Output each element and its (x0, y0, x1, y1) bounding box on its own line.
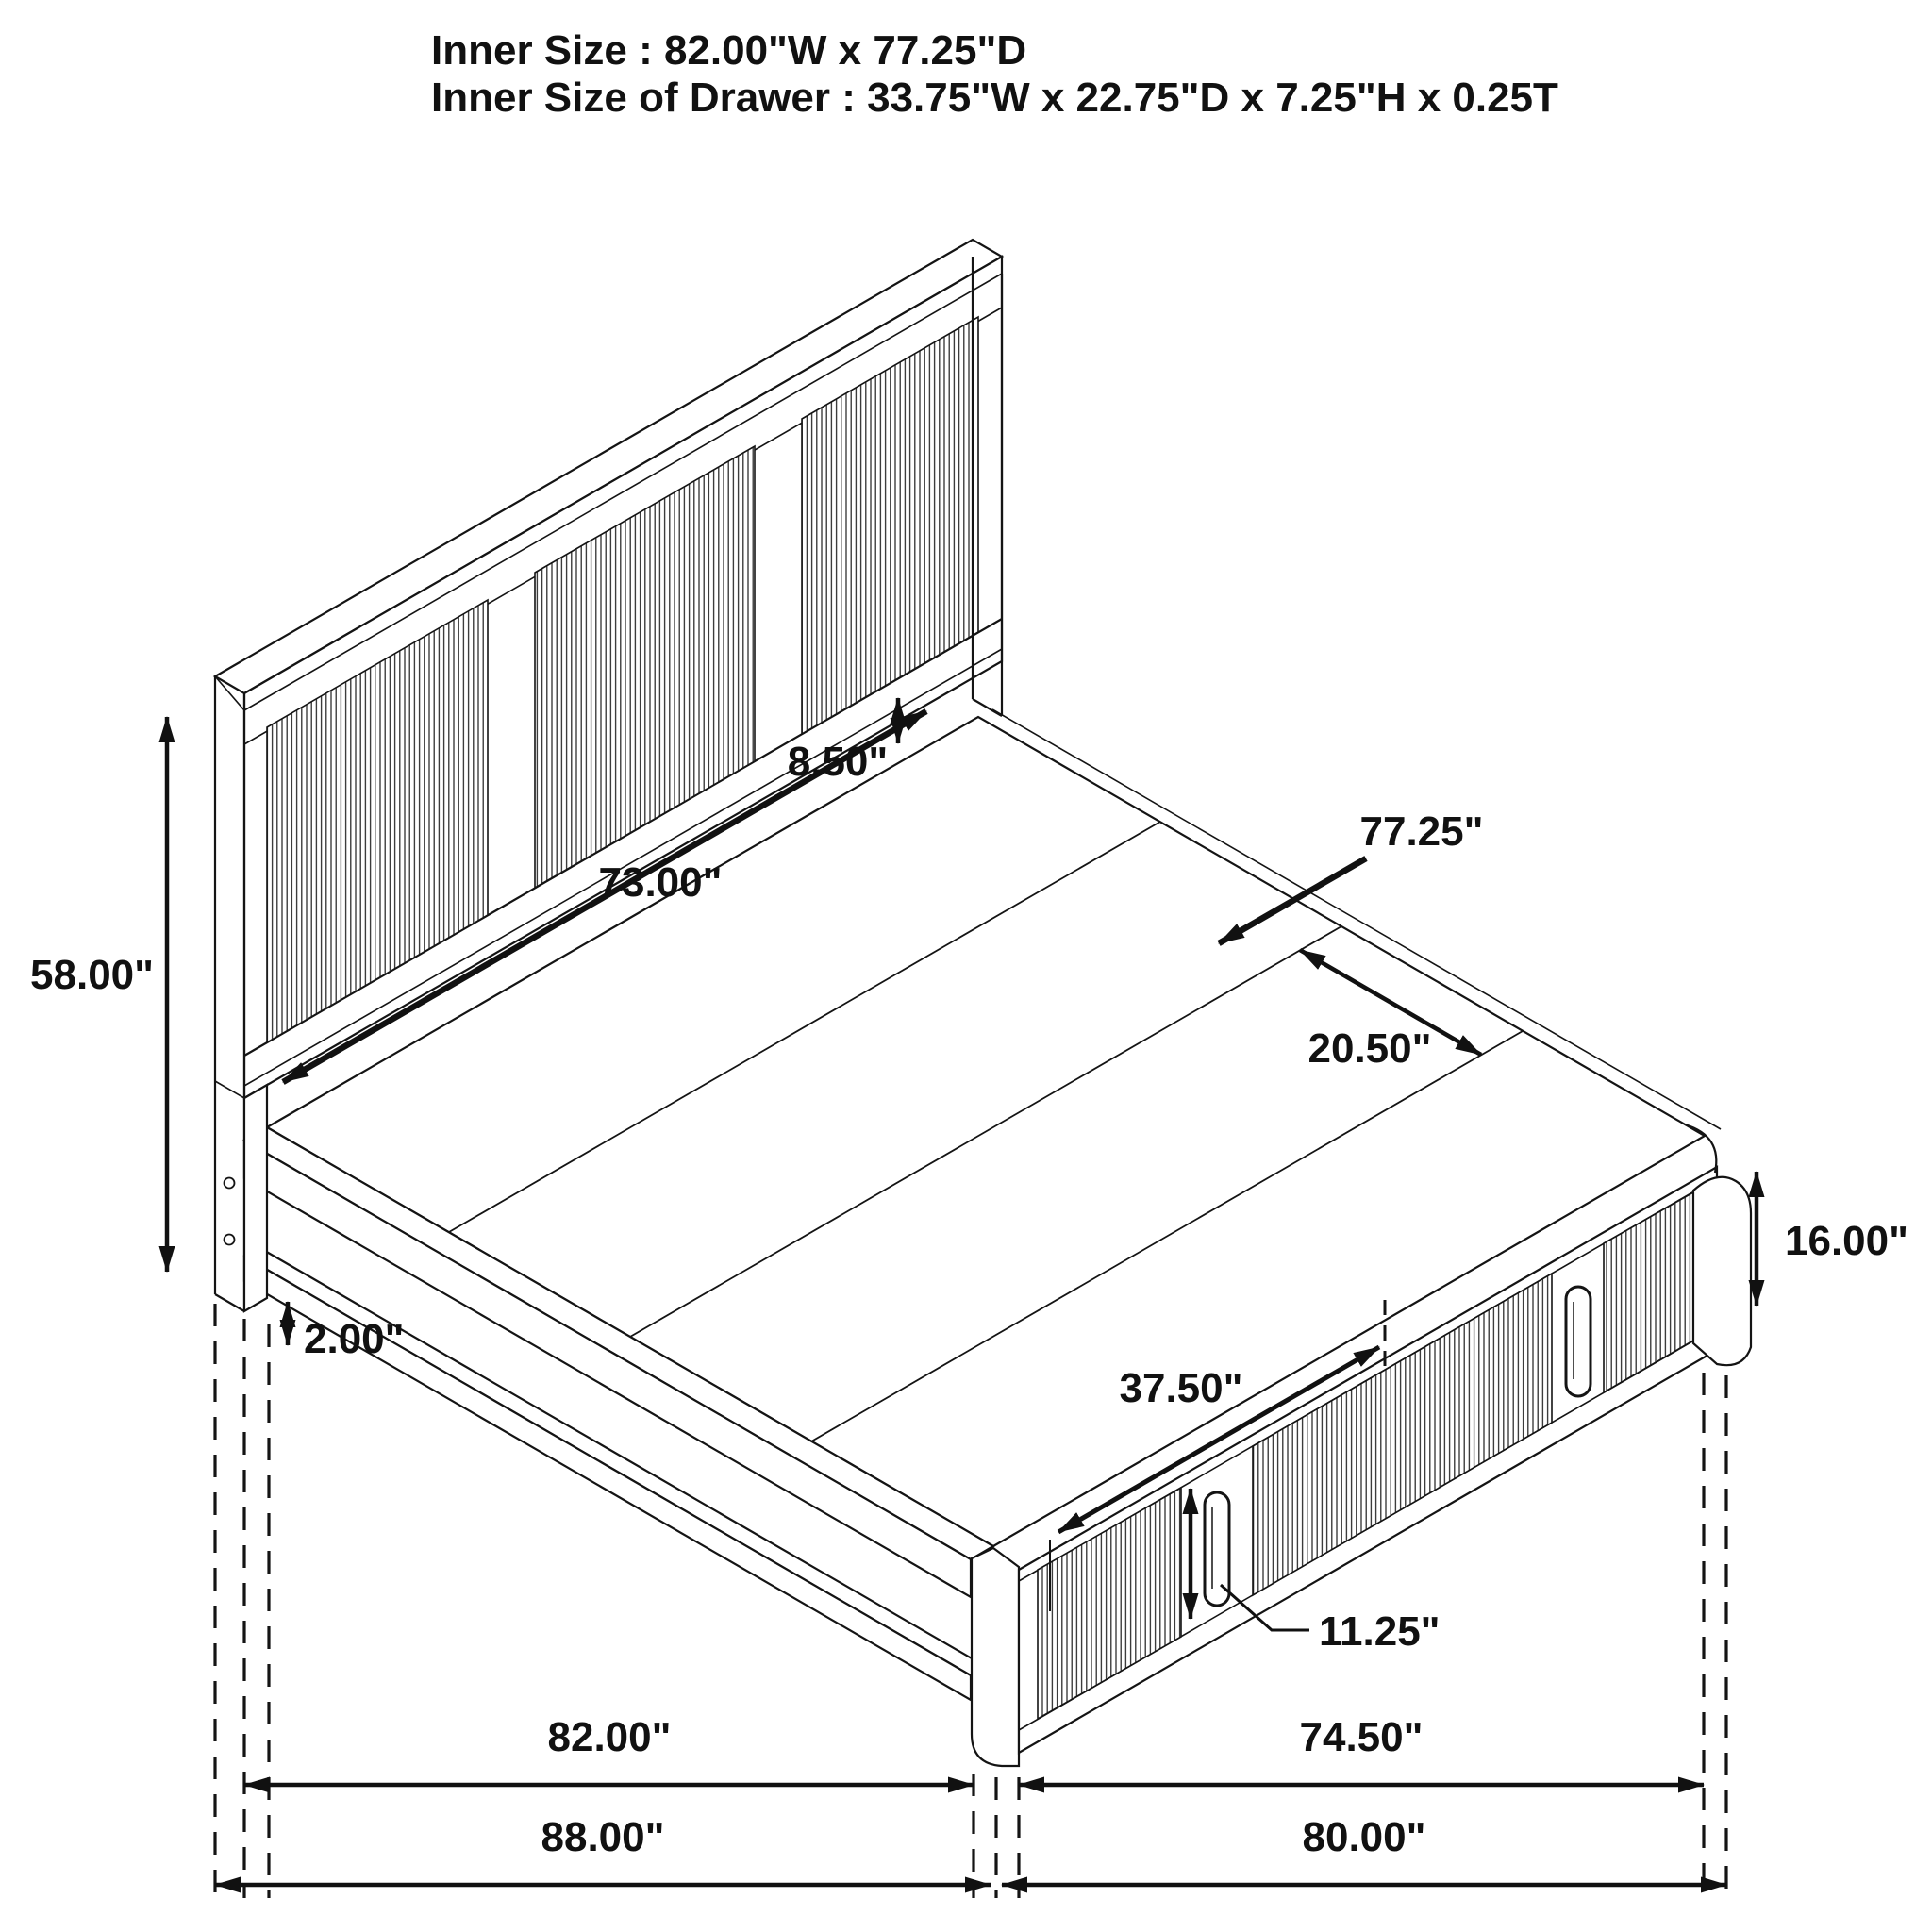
title-block: Inner Size : 82.00"W x 77.25"D Inner Siz… (431, 27, 1558, 121)
dim-headboard-inner-width-label: 73.00" (599, 859, 723, 906)
title-inner-size-drawer: Inner Size of Drawer : 33.75"W x 22.75"D… (431, 75, 1558, 121)
dim-overall-side-length-label: 88.00" (541, 1814, 665, 1860)
dim-overall-foot-length: 80.00" (1002, 1814, 1726, 1885)
dim-headboard-height: 58.00" (30, 717, 167, 1272)
dim-side-rail-length: 82.00" (244, 1714, 974, 1785)
drawer-handle-right (1566, 1287, 1591, 1396)
dim-footboard-height: 16.00" (1757, 1172, 1908, 1306)
leg-screw-hole-bottom (225, 1235, 235, 1245)
bed-dimension-diagram-page: 58.00" 2.00" 73.00" 8.50" 77.25" 20.50" … (0, 0, 1932, 1932)
dim-side-rail-length-label: 82.00" (548, 1714, 672, 1760)
dim-floor-clearance-label: 2.00" (304, 1316, 405, 1362)
front-corner-leg (972, 1548, 1019, 1766)
dim-footboard-height-label: 16.00" (1785, 1218, 1908, 1264)
dim-headboard-height-label: 58.00" (30, 952, 154, 998)
dim-overall-foot-length-label: 80.00" (1303, 1814, 1426, 1860)
headboard-left-leg (244, 1085, 267, 1311)
dim-slat-width-label: 20.50" (1308, 1025, 1432, 1072)
bed-dimension-diagram: 58.00" 2.00" 73.00" 8.50" 77.25" 20.50" … (0, 0, 1932, 1932)
right-corner-post (1693, 1177, 1751, 1365)
dim-drawer-side-length: 74.50" (1019, 1714, 1704, 1785)
dim-drawer-handle-height-label: 11.25" (1319, 1608, 1441, 1655)
dim-headboard-rail-gap-label: 8.50" (788, 739, 889, 785)
leg-screw-hole-top (225, 1178, 235, 1189)
dim-platform-depth-label: 77.25" (1360, 808, 1484, 855)
dim-drawer-side-length-label: 74.50" (1300, 1714, 1424, 1760)
dim-drawer-front-width-label: 37.50" (1120, 1365, 1243, 1411)
dim-overall-side-length: 88.00" (215, 1814, 991, 1885)
title-inner-size: Inner Size : 82.00"W x 77.25"D (431, 27, 1026, 74)
dim-platform-depth: 77.25" (1219, 808, 1483, 943)
